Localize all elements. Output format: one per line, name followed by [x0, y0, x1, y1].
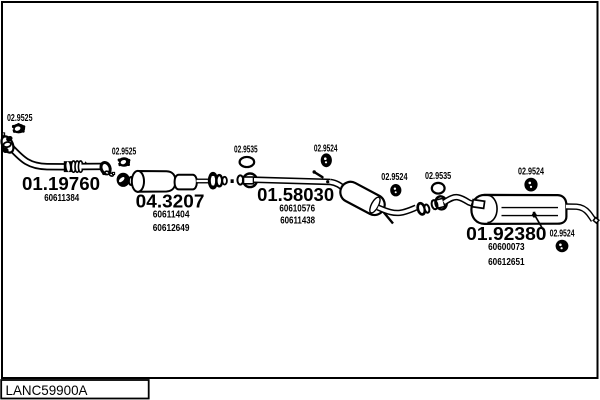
svg-text:02.9535: 02.9535: [425, 171, 452, 182]
svg-text:60600073: 60600073: [488, 242, 525, 253]
svg-text:02.9525: 02.9525: [112, 146, 137, 157]
svg-text:01.92380: 01.92380: [466, 223, 546, 244]
svg-text:60610576: 60610576: [279, 204, 315, 215]
svg-text:04.3207: 04.3207: [136, 191, 205, 212]
svg-text:60611404: 60611404: [153, 210, 190, 221]
svg-text:LANC59900A: LANC59900A: [6, 382, 89, 398]
svg-text:02.9524: 02.9524: [314, 143, 338, 154]
svg-text:02.9524: 02.9524: [518, 166, 544, 177]
svg-text:02.9525: 02.9525: [7, 113, 33, 124]
svg-text:02.9524: 02.9524: [381, 172, 408, 183]
svg-text:60612651: 60612651: [488, 257, 525, 268]
svg-text:60611438: 60611438: [280, 215, 315, 226]
svg-text:60611384: 60611384: [44, 193, 79, 204]
svg-text:01.58030: 01.58030: [257, 184, 334, 205]
svg-text:02.9535: 02.9535: [234, 145, 258, 156]
svg-text:02.9524: 02.9524: [550, 229, 575, 240]
svg-text:60612649: 60612649: [153, 223, 190, 234]
svg-text:01.19760: 01.19760: [22, 173, 100, 194]
